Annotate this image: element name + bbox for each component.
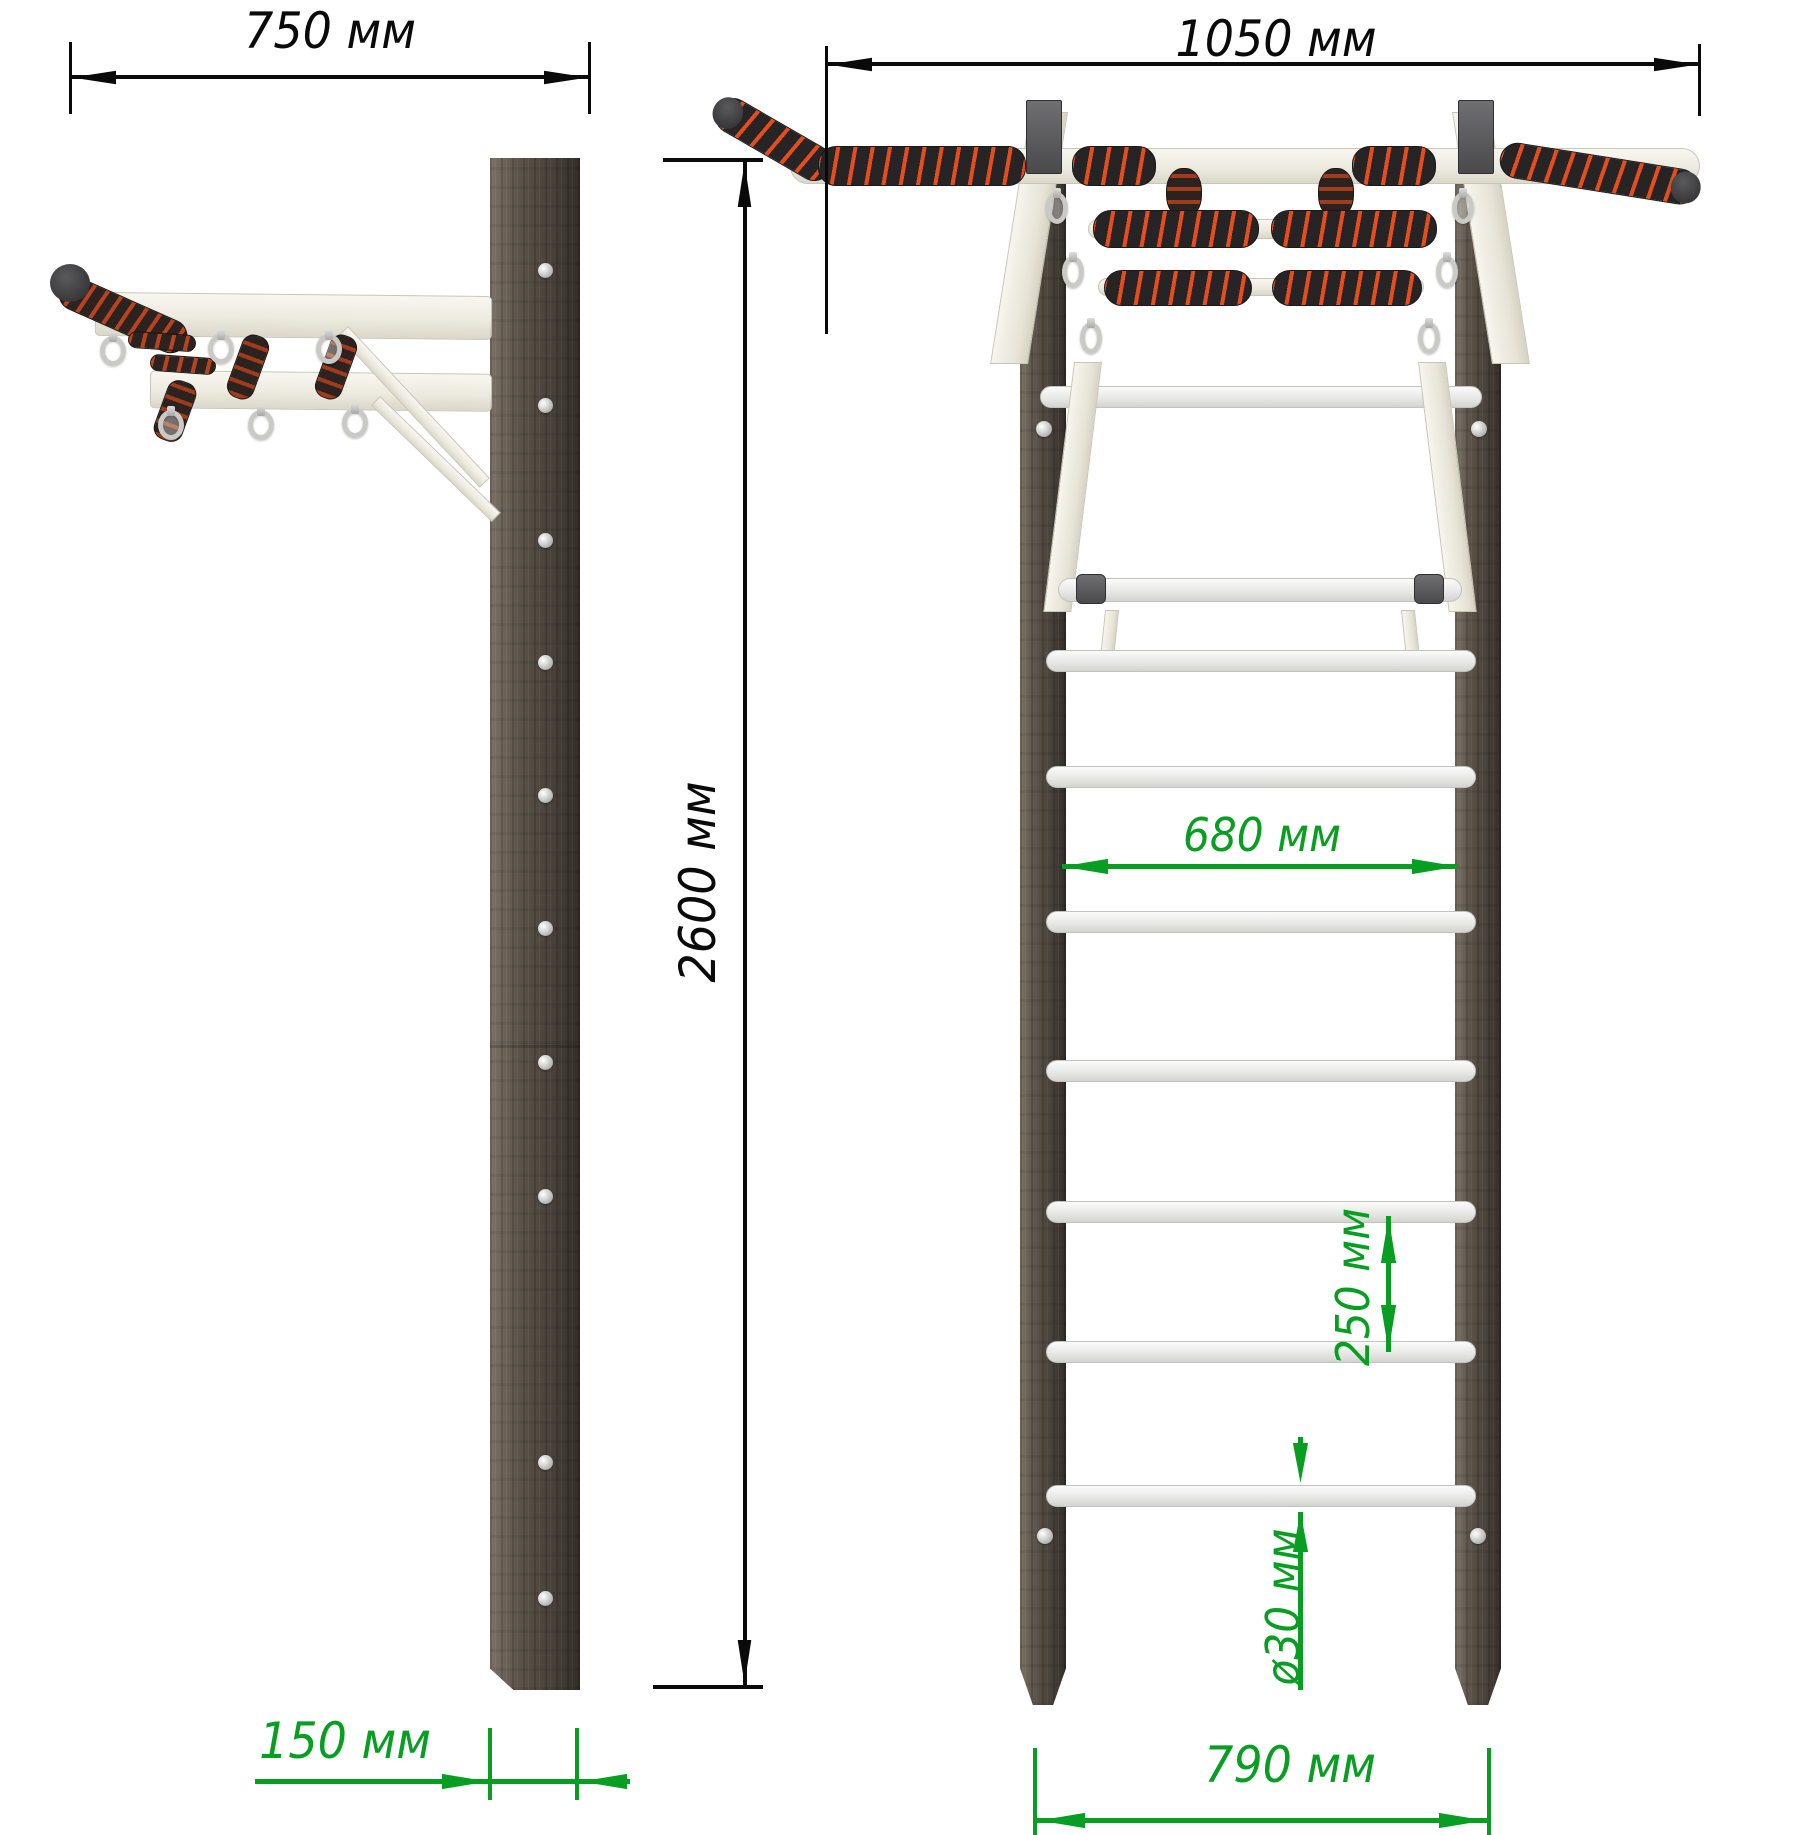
ladder-rung (1046, 1201, 1476, 1223)
bolt (1470, 1528, 1486, 1544)
dimension-line (70, 75, 590, 79)
side-bar-end-cap (50, 264, 90, 302)
eye-bolt-icon (248, 410, 274, 440)
bolt (1036, 421, 1052, 437)
bolt (538, 1591, 553, 1606)
dimension-tick (653, 1685, 763, 1689)
front-view (690, 0, 1800, 1835)
bar-mount-bracket-left (1026, 100, 1062, 174)
grip-row3-foam-right (1271, 210, 1437, 248)
ladder-rung (1046, 650, 1476, 672)
bolt (538, 398, 553, 413)
dimension-tick (575, 1728, 579, 1800)
eye-bolt-icon (342, 408, 368, 438)
bolt (538, 921, 553, 936)
bolt (1037, 1528, 1053, 1544)
grip-row4-foam-right (1272, 270, 1422, 306)
side-diagonal-brace-lower (371, 396, 501, 522)
ladder-rung (1046, 911, 1476, 933)
bolt (538, 1055, 553, 1070)
bolt (538, 533, 553, 548)
eye-bolt-icon (1062, 256, 1084, 288)
eye-bolt-icon (1452, 192, 1474, 224)
bar-foam-grip (1072, 146, 1156, 186)
dimension-rung-spacing-label: 250 мм (1328, 1195, 1378, 1379)
eye-bolt-icon (100, 336, 126, 366)
dimension-line (1062, 864, 1458, 869)
dimension-extension-line (1698, 44, 1701, 116)
dimension-line (743, 160, 747, 1688)
bar-foam-grip (1352, 146, 1436, 186)
bolt (538, 1455, 553, 1470)
ladder-rung (1046, 1341, 1476, 1363)
eye-bolt-icon (1436, 256, 1458, 288)
dimension-wall-offset-label: 150 мм (207, 1712, 483, 1770)
dimension-tick (488, 1728, 492, 1800)
dimension-tick (663, 158, 763, 162)
eye-bolt-icon (1080, 322, 1102, 354)
dimension-tick (1033, 1748, 1037, 1835)
ladder-rung (1046, 766, 1476, 788)
dimension-ladder-outer-width-label: 790 мм (1152, 1736, 1428, 1794)
dimension-line (826, 62, 1700, 66)
dimension-tick (1487, 1748, 1491, 1835)
bolt (538, 655, 553, 670)
ladder-rung (1046, 1060, 1476, 1082)
dimension-line (1036, 1818, 1489, 1823)
bar-end-cap (707, 92, 749, 135)
bolt (1471, 421, 1487, 437)
ladder-rung-reinforced (1058, 578, 1462, 602)
dimension-side-width-label: 750 мм (174, 2, 487, 60)
technical-drawing-canvas: 750 мм 1050 мм 2600 мм 680 мм 250 мм (0, 0, 1800, 1835)
bar-end-cap (1668, 169, 1703, 205)
bar-mount-bracket-right (1458, 100, 1494, 174)
bolt (538, 1189, 553, 1204)
dimension-extension-line (825, 46, 828, 334)
eye-bolt-icon (316, 334, 342, 364)
plank-seam (490, 1045, 580, 1048)
side-view (0, 0, 760, 1835)
rung-fitting-right (1414, 574, 1444, 604)
rung-fitting-left (1076, 574, 1106, 604)
eye-bolt-icon (158, 410, 184, 440)
grip-row3-foam-left (1093, 210, 1259, 248)
eye-bolt-icon (1418, 322, 1440, 354)
ladder-rung (1046, 1485, 1476, 1507)
ladder-rung (1040, 386, 1482, 408)
side-grip-row3 (127, 331, 196, 353)
dimension-tick (588, 42, 591, 114)
dimension-tick (69, 42, 72, 114)
bar-foam-grip (818, 146, 1026, 186)
bolt (538, 263, 553, 278)
bolt (538, 788, 553, 803)
grip-row4-foam-left (1104, 270, 1252, 306)
eye-bolt-icon (208, 334, 234, 364)
dimension-total-height-label: 2600 мм (668, 772, 728, 993)
side-wall-plank (490, 158, 580, 1690)
eye-bolt-icon (1046, 192, 1068, 224)
dimension-front-width-label: 1050 мм (1120, 10, 1433, 68)
dimension-rung-clear-width-label: 680 мм (1124, 808, 1400, 862)
